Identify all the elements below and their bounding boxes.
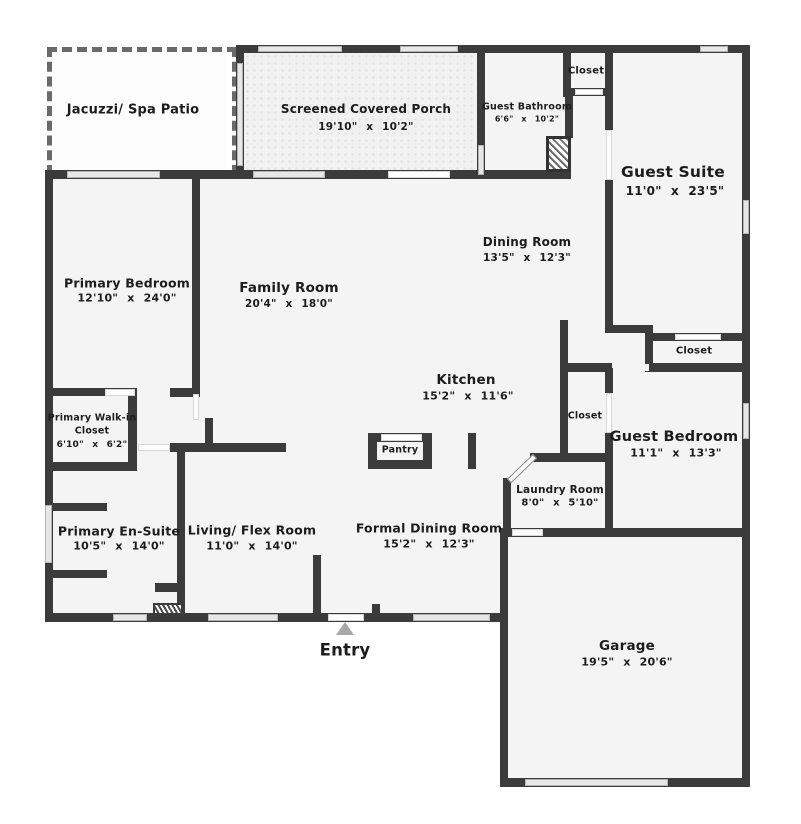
window [208, 614, 278, 621]
room-dims-guest-bathroom: 6'6" x 10'2" [495, 115, 559, 124]
wall-segment [423, 433, 432, 469]
wall-segment [128, 388, 137, 471]
wall-segment [565, 93, 573, 138]
window [253, 171, 325, 178]
room-dims-kitchen: 15'2" x 11'6" [422, 390, 513, 403]
wall-segment [468, 433, 476, 469]
room-dims-formal-dining: 15'2" x 12'3" [383, 538, 474, 551]
room-label-closet-mid: Closet [568, 411, 603, 422]
window [743, 200, 749, 234]
room-label-jacuzzi: Jacuzzi/ Spa Patio [67, 103, 200, 118]
door-gap [193, 394, 199, 420]
room-label-ensuite: Primary En-Suite [58, 524, 180, 539]
window [413, 614, 490, 621]
room-dims-ensuite: 10'5" x 14'0" [73, 540, 164, 553]
window [478, 145, 484, 175]
entry-door-gap [328, 614, 364, 621]
room-dims-primary-bedroom: 12'10" x 24'0" [77, 292, 176, 305]
wall-segment [530, 453, 613, 462]
room-dims-garage: 19'5" x 20'6" [581, 656, 672, 669]
door-gap [606, 393, 612, 433]
wall-segment [45, 570, 107, 578]
room-label-guest-suite: Guest Suite [621, 163, 725, 181]
room-label-walkin-line1: Primary Walk-in [48, 413, 137, 424]
wall-segment [605, 433, 613, 537]
window [67, 171, 160, 178]
room-dims-living: 11'0" x 14'0" [206, 540, 297, 553]
wall-segment [192, 179, 200, 394]
room-label-laundry: Laundry Room [516, 484, 604, 496]
window [743, 403, 749, 439]
window [258, 46, 342, 52]
room-label-primary-bedroom: Primary Bedroom [64, 276, 190, 291]
floor-plan: Jacuzzi/ Spa Patio Screened Covered Porc… [0, 0, 801, 824]
room-label-closet-top: Closet [568, 66, 604, 77]
door-gap [575, 89, 603, 95]
door-gap [381, 434, 422, 441]
room-label-porch: Screened Covered Porch [281, 102, 451, 116]
room-dims-dining: 13'5" x 12'3" [483, 252, 571, 264]
door-gap [105, 389, 135, 396]
room-dims-guest-suite: 11'0" x 23'5" [626, 184, 725, 198]
wall-segment [605, 368, 613, 393]
wall-segment [313, 555, 321, 622]
window [45, 505, 52, 563]
entry-label: Entry [320, 641, 371, 660]
wall-segment [372, 604, 380, 614]
room-label-garage: Garage [599, 638, 655, 654]
garage-door [525, 779, 668, 786]
shower-hatch [546, 136, 571, 172]
wall-segment [560, 320, 568, 457]
wall-segment [650, 363, 750, 372]
room-dims-guest-bedroom: 11'1" x 13'3" [630, 447, 721, 460]
room-dims-laundry: 8'0" x 5'10" [521, 498, 598, 509]
wall-segment [45, 503, 107, 511]
room-label-closet-right: Closet [676, 346, 712, 357]
room-label-guest-bedroom: Guest Bedroom [610, 429, 739, 445]
window [400, 46, 458, 52]
wall-segment [155, 583, 179, 592]
room-label-dining: Dining Room [483, 235, 571, 249]
room-dims-family: 20'4" x 18'0" [245, 298, 333, 310]
window [700, 46, 728, 52]
wall-segment [170, 443, 286, 452]
window [237, 63, 243, 166]
window [113, 614, 147, 621]
entry-direction-icon [336, 622, 354, 635]
room-label-walkin-line2: Closet [75, 426, 110, 437]
hatched-fixture [153, 603, 183, 615]
hall-opening [613, 364, 649, 371]
door-gap [675, 334, 721, 340]
door-gap [512, 529, 543, 536]
room-label-kitchen: Kitchen [436, 372, 495, 388]
wall-segment [605, 53, 613, 130]
door-gap [388, 171, 450, 178]
room-dims-porch: 19'10" x 10'2" [318, 121, 413, 133]
room-label-family: Family Room [239, 280, 339, 296]
wall-segment [45, 462, 137, 471]
wall-segment [500, 528, 508, 787]
room-label-living: Living/ Flex Room [188, 523, 316, 538]
room-label-pantry: Pantry [382, 445, 419, 456]
room-label-guest-bathroom: Guest Bathroom [482, 102, 572, 113]
room-dims-walkin: 6'10" x 6'2" [57, 440, 128, 450]
wall-segment [605, 180, 613, 333]
door-gap [138, 444, 170, 451]
room-label-formal-dining: Formal Dining Room [356, 521, 502, 536]
door-gap [606, 130, 612, 180]
